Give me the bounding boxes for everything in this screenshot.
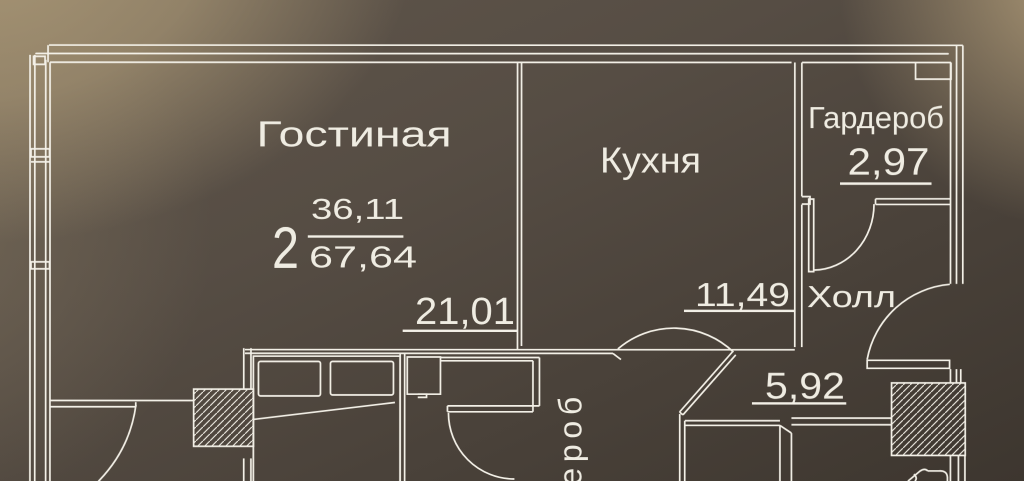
svg-text:Кухня: Кухня [600, 140, 701, 181]
svg-text:2,97: 2,97 [848, 142, 930, 184]
svg-text:5,92: 5,92 [765, 366, 845, 407]
svg-text:11,49: 11,49 [695, 276, 790, 313]
svg-text:21,01: 21,01 [415, 291, 515, 333]
svg-text:67,64: 67,64 [309, 239, 417, 274]
svg-text:2: 2 [272, 216, 299, 281]
svg-text:Гардероб: Гардероб [808, 100, 944, 135]
svg-text:Холл: Холл [807, 279, 896, 314]
svg-text:36,11: 36,11 [311, 194, 404, 226]
svg-text:Гардероб: Гардероб [552, 391, 588, 481]
svg-text:Гостиная: Гостиная [257, 113, 452, 154]
